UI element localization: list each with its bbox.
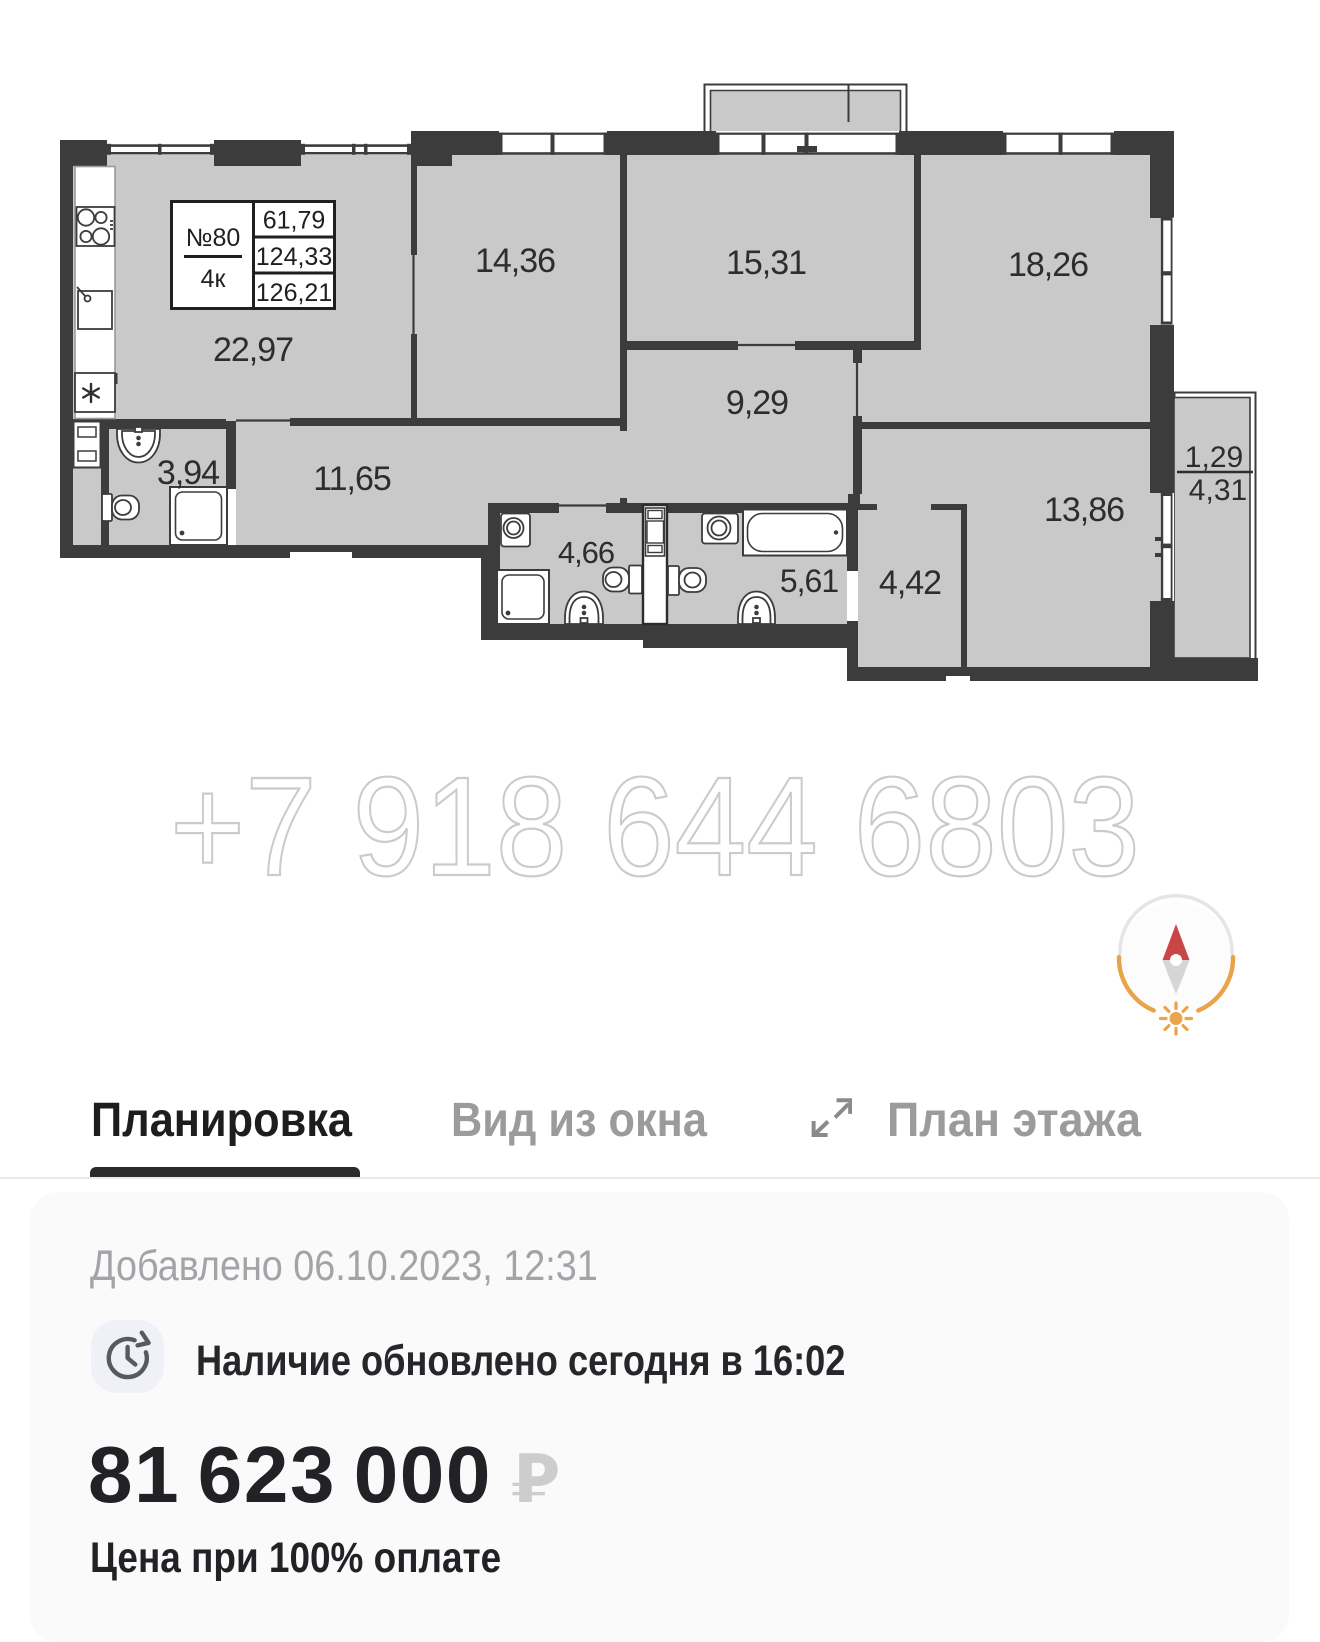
svg-text:124,33: 124,33 <box>256 243 332 271</box>
svg-text:9,29: 9,29 <box>726 384 788 422</box>
svg-text:61,79: 61,79 <box>263 207 326 235</box>
svg-text:4к: 4к <box>201 265 227 293</box>
svg-text:№80: №80 <box>186 224 241 252</box>
svg-text:18,26: 18,26 <box>1008 246 1088 284</box>
svg-text:1,29: 1,29 <box>1185 441 1243 474</box>
svg-text:5,61: 5,61 <box>780 563 838 599</box>
svg-text:22,97: 22,97 <box>213 331 293 369</box>
svg-text:13,86: 13,86 <box>1044 491 1124 529</box>
svg-text:4,31: 4,31 <box>1189 474 1247 507</box>
svg-text:4,42: 4,42 <box>879 564 941 602</box>
svg-text:15,31: 15,31 <box>726 244 806 282</box>
svg-text:3,94: 3,94 <box>157 454 219 492</box>
svg-text:4,66: 4,66 <box>558 535 614 570</box>
svg-text:126,21: 126,21 <box>256 279 332 307</box>
svg-text:11,65: 11,65 <box>313 460 391 498</box>
svg-text:+7 918 644 6803: +7 918 644 6803 <box>170 747 1140 905</box>
svg-text:14,36: 14,36 <box>475 242 555 280</box>
